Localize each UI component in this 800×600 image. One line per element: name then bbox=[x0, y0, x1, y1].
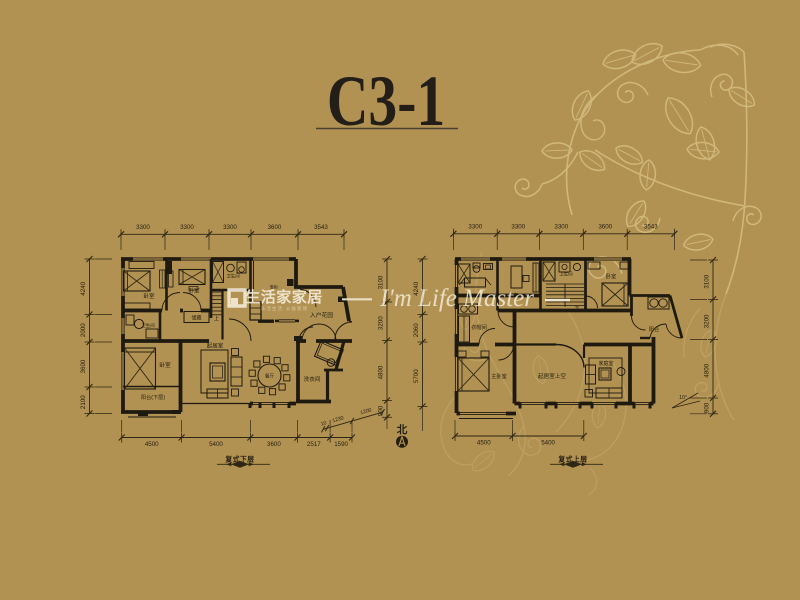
svg-text:上: 上 bbox=[214, 315, 220, 323]
svg-text:2100: 2100 bbox=[80, 395, 87, 409]
svg-text:洗衣间: 洗衣间 bbox=[304, 375, 321, 383]
svg-text:2000: 2000 bbox=[80, 323, 87, 337]
svg-text:4800: 4800 bbox=[704, 363, 711, 377]
svg-text:生活家家居: 生活家家居 bbox=[245, 288, 323, 306]
svg-text:卧室: 卧室 bbox=[188, 287, 200, 295]
svg-text:3300: 3300 bbox=[511, 224, 525, 231]
svg-text:起居室: 起居室 bbox=[207, 342, 224, 350]
svg-text:下: 下 bbox=[574, 306, 579, 312]
svg-text:餐厅: 餐厅 bbox=[265, 373, 275, 380]
svg-text:3300: 3300 bbox=[180, 224, 194, 231]
svg-text:卧室: 卧室 bbox=[606, 272, 616, 280]
svg-text:5400: 5400 bbox=[209, 441, 223, 448]
svg-text:卫生间: 卫生间 bbox=[141, 322, 154, 329]
svg-text:3300: 3300 bbox=[468, 224, 482, 231]
svg-text:5400: 5400 bbox=[541, 440, 555, 447]
svg-text:3600: 3600 bbox=[268, 224, 282, 231]
svg-text:3200: 3200 bbox=[704, 314, 711, 328]
svg-text:3600: 3600 bbox=[598, 224, 612, 231]
svg-text:1590: 1590 bbox=[334, 441, 348, 448]
svg-text:3600: 3600 bbox=[267, 441, 281, 448]
svg-text:北: 北 bbox=[397, 423, 408, 436]
svg-text:阳台(下层): 阳台(下层) bbox=[141, 393, 165, 401]
svg-text:3543: 3543 bbox=[314, 224, 328, 231]
svg-text:卧室: 卧室 bbox=[159, 361, 171, 369]
svg-text:卫生间: 卫生间 bbox=[226, 273, 239, 280]
svg-text:3200: 3200 bbox=[378, 316, 385, 330]
svg-text:3600: 3600 bbox=[80, 359, 87, 373]
svg-text:3300: 3300 bbox=[554, 224, 568, 231]
svg-text:3300: 3300 bbox=[223, 224, 237, 231]
svg-text:5700: 5700 bbox=[413, 369, 420, 383]
svg-text:乐 活 生 活 · 公 益 装 修: 乐 活 生 活 · 公 益 装 修 bbox=[261, 305, 308, 312]
svg-text:10°: 10° bbox=[679, 395, 687, 401]
svg-text:衣帽间: 衣帽间 bbox=[471, 323, 487, 331]
svg-text:卫生间: 卫生间 bbox=[559, 271, 572, 278]
svg-text:C3-1: C3-1 bbox=[327, 62, 445, 142]
svg-text:3543: 3543 bbox=[644, 224, 658, 231]
svg-text:储藏: 储藏 bbox=[191, 315, 201, 322]
svg-text:阳台: 阳台 bbox=[649, 325, 659, 333]
svg-text:900: 900 bbox=[704, 402, 711, 413]
svg-text:4800: 4800 bbox=[378, 365, 385, 379]
svg-text:4500: 4500 bbox=[145, 441, 159, 448]
svg-text:主卧室: 主卧室 bbox=[491, 372, 507, 380]
svg-text:起居室上空: 起居室上空 bbox=[538, 372, 566, 380]
svg-text:卧室: 卧室 bbox=[143, 292, 155, 300]
svg-text:I'm Life Master: I'm Life Master bbox=[379, 285, 534, 312]
svg-text:家庭室: 家庭室 bbox=[598, 360, 613, 367]
svg-text:3100: 3100 bbox=[704, 274, 711, 288]
svg-text:入户花园: 入户花园 bbox=[310, 311, 333, 319]
svg-text:2517: 2517 bbox=[307, 441, 321, 448]
svg-text:4240: 4240 bbox=[80, 281, 87, 295]
svg-text:3300: 3300 bbox=[136, 224, 150, 231]
svg-text:4500: 4500 bbox=[477, 440, 491, 447]
svg-text:2060: 2060 bbox=[413, 323, 420, 337]
